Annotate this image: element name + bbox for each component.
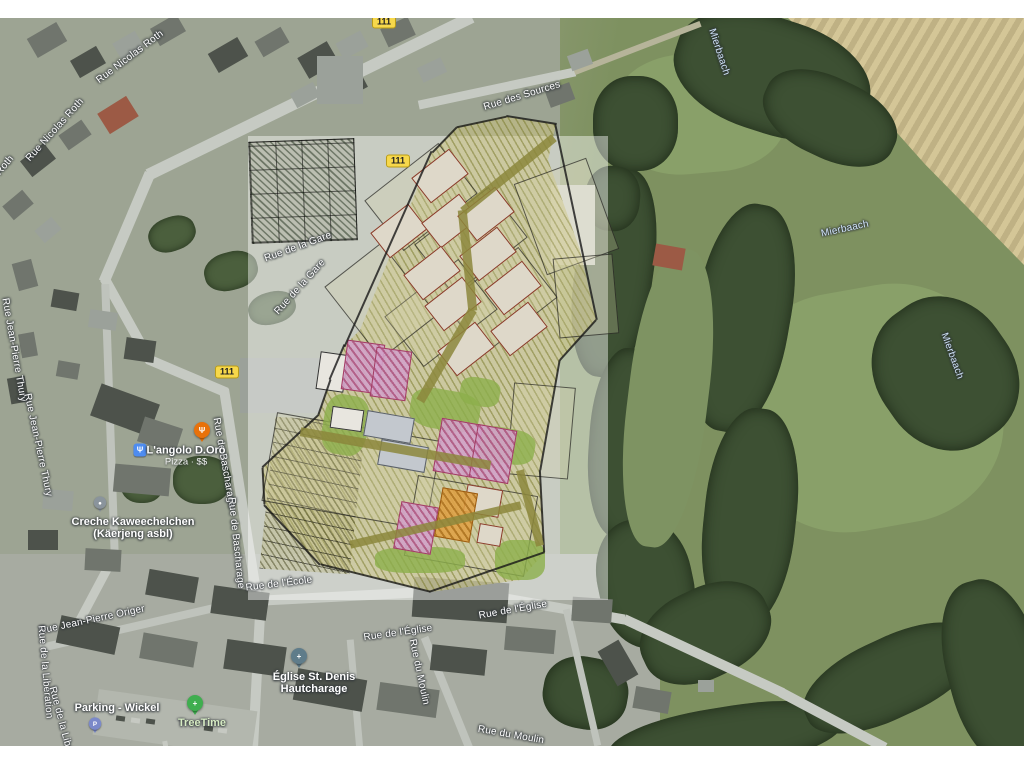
h-dark (145, 718, 155, 724)
parking-pin-icon: P (89, 717, 101, 729)
h-white (130, 717, 140, 723)
restaurant-details: Pizza · $$ (147, 457, 226, 468)
pinkb (370, 347, 413, 402)
h-gray (84, 548, 121, 572)
h-dark (115, 715, 125, 721)
satellite-map-canvas[interactable]: Rue Nicolas Roth Rue Nicolas Roth Rue Ni… (0, 18, 1024, 748)
route-badge-111: 111 (372, 18, 396, 29)
poi-church[interactable]: Église St. Denis Hautcharage (273, 671, 356, 695)
restaurant-category-icon: Ψ (134, 444, 147, 457)
bottom-margin (0, 746, 1024, 768)
water-label: Mierbaach (820, 219, 870, 240)
poi-restaurant[interactable]: L'angolo D.Oro Pizza · $$ (147, 445, 226, 468)
site-plan-overlay (250, 113, 615, 608)
route-badge-111: 111 (215, 366, 239, 379)
h-light (317, 56, 363, 104)
treetime-pin-icon: + (187, 695, 203, 711)
plan-cadastral-grid (248, 138, 357, 244)
h-gray (504, 626, 556, 654)
h-gray (113, 464, 171, 497)
top-margin (0, 0, 1024, 18)
map-screenshot: Rue Nicolas Roth Rue Nicolas Roth Rue Ni… (0, 0, 1024, 768)
restaurant-name[interactable]: L'angolo D.Oro (147, 445, 226, 457)
bldg (476, 523, 503, 547)
h-dark (28, 530, 58, 550)
poi-creche[interactable]: Creche Kaweechelchen (Käerjeng asbl) (72, 516, 195, 540)
h-dark (124, 337, 157, 363)
h-red (652, 244, 685, 271)
church-name-line2: Hautcharage (273, 683, 356, 695)
poi-parking[interactable]: Parking - Wickel (75, 702, 160, 714)
creche-pin-icon: ● (94, 496, 106, 508)
creche-name-line1[interactable]: Creche Kaweechelchen (72, 516, 195, 528)
bldg-white (330, 406, 365, 432)
route-badge-111: 111 (386, 155, 410, 168)
restaurant-pin-icon: Ψ (194, 422, 210, 438)
h-light (698, 680, 714, 692)
parking-name[interactable]: Parking - Wickel (75, 702, 160, 714)
church-name-line1[interactable]: Église St. Denis (273, 671, 356, 683)
poi-treetime[interactable]: TreeTime (178, 717, 226, 729)
creche-name-line2: (Käerjeng asbl) (72, 528, 195, 540)
treetime-name[interactable]: TreeTime (178, 717, 226, 729)
church-pin-icon: + (291, 648, 307, 664)
h-light (88, 309, 118, 331)
